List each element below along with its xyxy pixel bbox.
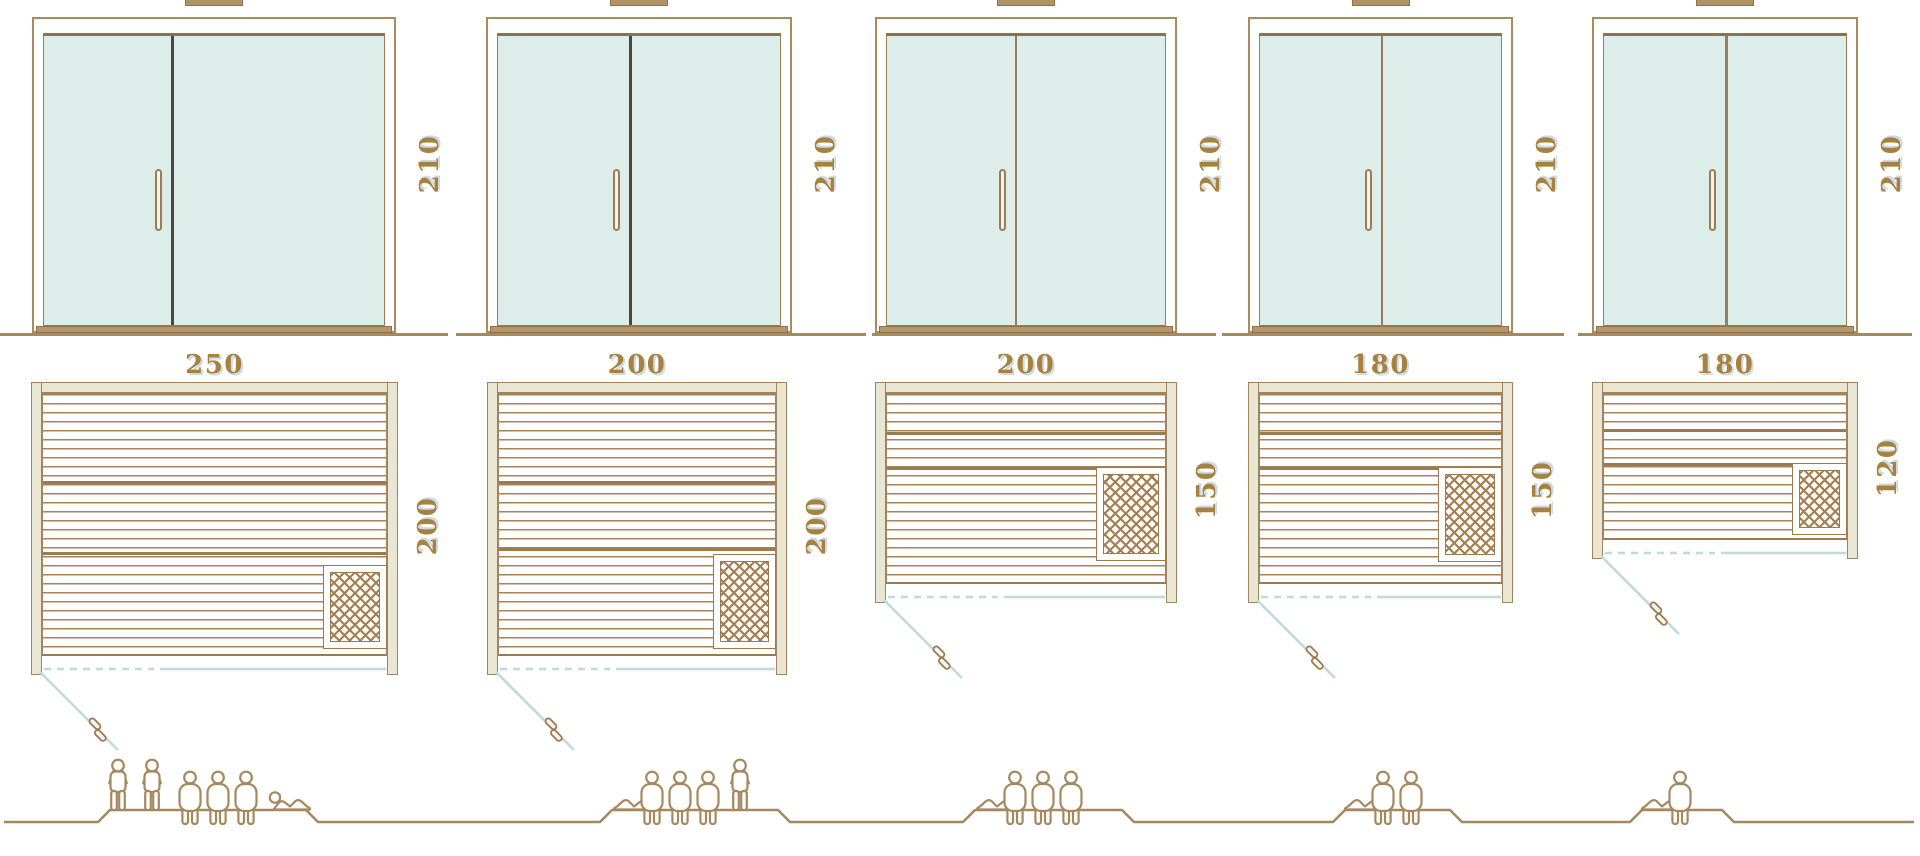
open-door-handle-icon (1302, 645, 1327, 670)
door-sill (1252, 326, 1509, 333)
glass-front (43, 33, 385, 326)
plan-right-post (1502, 382, 1513, 603)
person-sitting-icon (642, 772, 663, 824)
bench-edge-line (1604, 429, 1846, 432)
person-sitting-icon (1670, 772, 1691, 824)
door-handle (613, 169, 620, 231)
width-dimension-label: 180 (1351, 350, 1410, 380)
bench-edge-line (887, 432, 1165, 435)
plan-top-wall (487, 382, 787, 393)
person-standing-icon (732, 760, 749, 810)
person-lying-icon (270, 792, 310, 809)
person-lying-icon (1345, 792, 1385, 809)
heater-icon (1096, 467, 1166, 561)
width-dimension-label: 200 (997, 350, 1056, 380)
person-sitting-icon (1033, 772, 1054, 824)
door-handle (1365, 169, 1372, 231)
roof-vent-tab (185, 0, 243, 6)
door-swing-line (1257, 600, 1335, 678)
door-handle (999, 169, 1006, 231)
plan-top-wall (1248, 382, 1513, 393)
height-dimension-label: 210 (811, 135, 841, 194)
open-door-handle-icon (85, 717, 110, 742)
person-sitting-icon (670, 772, 691, 824)
ground-line (4, 810, 1914, 822)
door-divider (629, 36, 632, 325)
elevation-ground-line (1222, 333, 1564, 336)
plan-left-post (1592, 382, 1603, 559)
capacity-group-3 (977, 772, 1082, 824)
person-standing-icon (110, 760, 127, 810)
plan-top-wall (875, 382, 1177, 393)
plan-bench-slats (42, 393, 387, 656)
person-sitting-icon (1373, 772, 1394, 824)
heater-icon (323, 565, 387, 649)
door-divider (1015, 36, 1018, 325)
plan-bench-slats (498, 393, 776, 656)
heater-stones-grid (330, 572, 380, 642)
capacity-group-1 (110, 760, 311, 824)
plan-top-wall (1592, 382, 1858, 393)
door-sill (1596, 326, 1854, 333)
capacity-group-2 (614, 760, 749, 824)
person-sitting-icon (1005, 772, 1026, 824)
depth-dimension-label: 120 (1873, 439, 1903, 498)
plan-right-post (776, 382, 787, 675)
door-divider (1381, 36, 1384, 325)
height-dimension-label: 210 (1196, 135, 1226, 194)
bench-edge-line (499, 481, 775, 484)
person-lying-icon (614, 792, 654, 809)
door-divider (1725, 36, 1728, 325)
sauna-size-diagram: 210250 200 210200 200 210200 150 210180 … (0, 0, 1920, 856)
depth-dimension-label: 200 (413, 497, 443, 556)
elevation-ground-line (1578, 333, 1912, 336)
heater-icon (713, 554, 776, 649)
heater-stones-grid (1799, 470, 1840, 528)
roof-vent-tab (1696, 0, 1754, 6)
glass-front (886, 33, 1166, 326)
door-swing-line (40, 672, 118, 750)
roof-vent-tab (610, 0, 668, 6)
roof-vent-tab (1352, 0, 1410, 6)
open-door-handle-icon (541, 717, 566, 742)
person-standing-icon (144, 760, 161, 810)
elevation-ground-line (456, 333, 866, 336)
person-sitting-icon (208, 772, 229, 824)
door-sill (490, 326, 788, 333)
person-sitting-icon (1061, 772, 1082, 824)
bench-edge-line (43, 481, 386, 484)
plan-bench-slats (886, 393, 1166, 584)
person-sitting-icon (698, 772, 719, 824)
elevation-ground-line (0, 333, 448, 336)
plan-bench-slats (1259, 393, 1502, 584)
door-divider (171, 36, 174, 325)
plan-bench-slats (1603, 393, 1847, 540)
door-swing-line (884, 600, 962, 678)
plan-right-post (387, 382, 398, 675)
door-sill (36, 326, 392, 333)
height-dimension-label: 210 (1532, 135, 1562, 194)
bench-edge-line (499, 548, 775, 551)
elevation-ground-line (872, 333, 1216, 336)
heater-icon (1438, 467, 1502, 562)
door-sill (879, 326, 1173, 333)
capacity-group-5 (1642, 772, 1691, 824)
roof-vent-tab (997, 0, 1055, 6)
bench-edge-line (43, 552, 386, 555)
plan-top-wall (31, 382, 398, 393)
depth-dimension-label: 150 (1192, 461, 1222, 520)
person-lying-icon (977, 792, 1017, 809)
plan-right-post (1847, 382, 1858, 559)
plan-left-post (31, 382, 42, 675)
heater-stones-grid (1445, 474, 1495, 555)
person-sitting-icon (236, 772, 257, 824)
plan-left-post (1248, 382, 1259, 603)
person-sitting-icon (180, 772, 201, 824)
capacity-group-4 (1345, 772, 1422, 824)
width-dimension-label: 250 (185, 350, 244, 380)
height-dimension-label: 210 (1877, 135, 1907, 194)
door-swing-line (496, 672, 574, 750)
open-door-handle-icon (929, 645, 954, 670)
width-dimension-label: 180 (1696, 350, 1755, 380)
open-door-handle-icon (1646, 601, 1671, 626)
heater-stones-grid (720, 561, 769, 642)
plan-left-post (875, 382, 886, 603)
person-sitting-icon (1401, 772, 1422, 824)
door-handle (155, 169, 162, 231)
bench-edge-line (1260, 432, 1501, 435)
width-dimension-label: 200 (608, 350, 667, 380)
depth-dimension-label: 200 (802, 497, 832, 556)
person-lying-icon (1642, 792, 1682, 809)
plan-left-post (487, 382, 498, 675)
heater-icon (1792, 463, 1847, 535)
door-swing-line (1601, 556, 1679, 634)
depth-dimension-label: 150 (1528, 461, 1558, 520)
plan-right-post (1166, 382, 1177, 603)
capacity-strip (0, 750, 1920, 856)
heater-stones-grid (1103, 474, 1159, 554)
door-handle (1709, 169, 1716, 231)
glass-front (497, 33, 781, 326)
height-dimension-label: 210 (415, 135, 445, 194)
